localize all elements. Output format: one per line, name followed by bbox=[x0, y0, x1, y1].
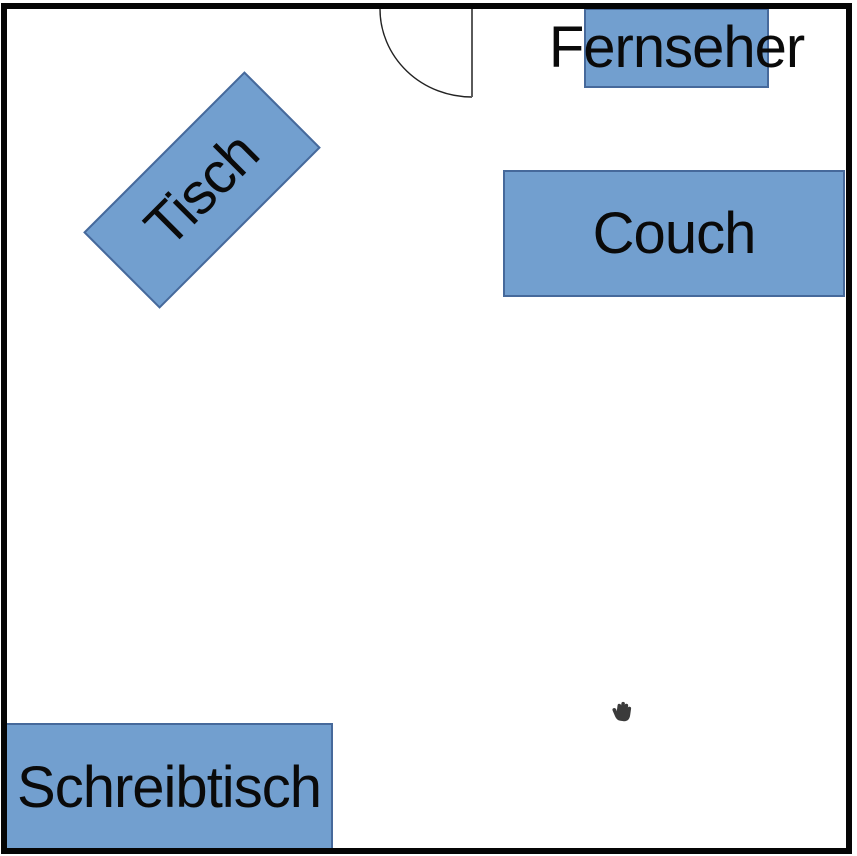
door-swing-arc bbox=[380, 9, 472, 97]
furniture-couch-label: Couch bbox=[593, 205, 756, 263]
furniture-schreibtisch[interactable]: Schreibtisch bbox=[5, 723, 333, 852]
furniture-fernseher[interactable]: Fernseher bbox=[584, 8, 769, 88]
furniture-schreibtisch-label: Schreibtisch bbox=[17, 759, 321, 817]
furniture-fernseher-label: Fernseher bbox=[549, 19, 804, 77]
furniture-couch[interactable]: Couch bbox=[503, 170, 845, 297]
